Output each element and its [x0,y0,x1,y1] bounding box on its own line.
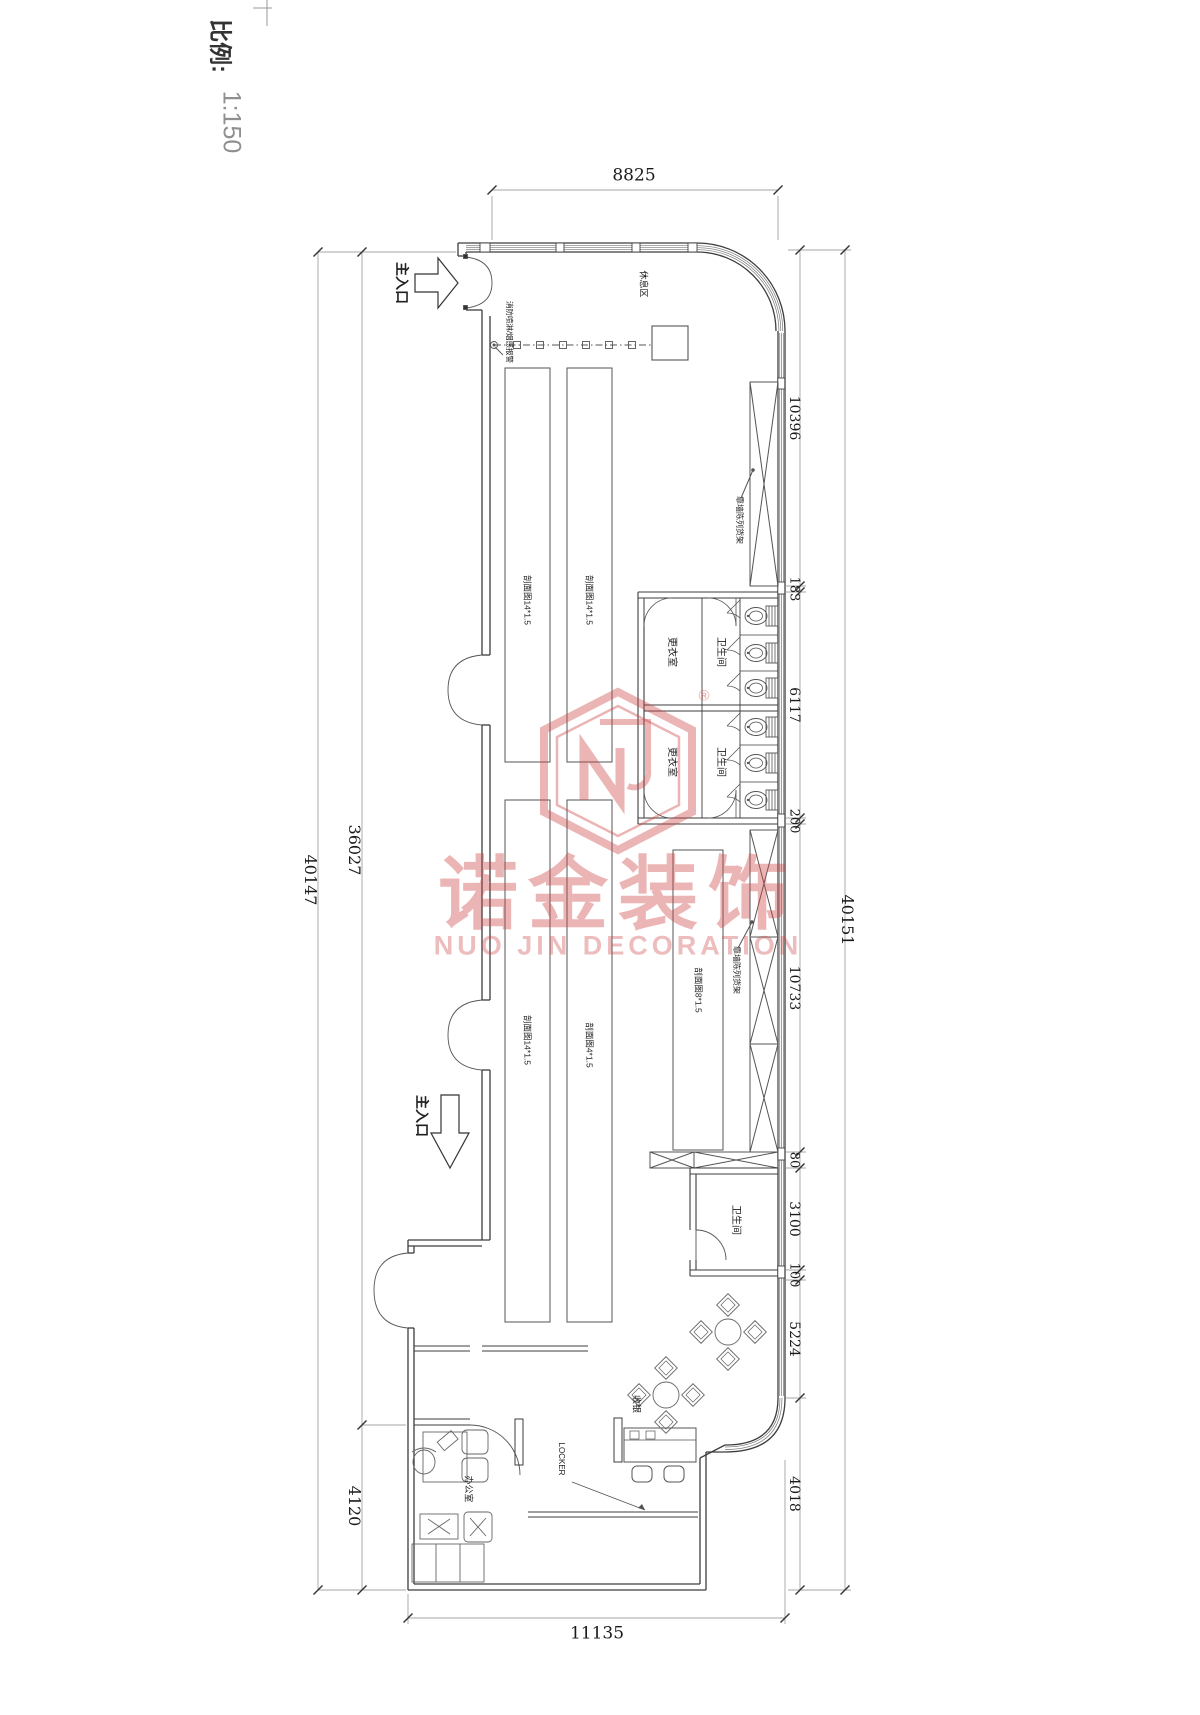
label-gondola-4: 剖面图4*1.5 [585,1022,594,1067]
dim-chain-6117: 6117 [787,687,801,723]
label-rest-area: 休息区 [639,270,648,297]
cafe-tables [628,1294,767,1434]
dim-chain-10396: 10396 [787,396,801,441]
dim-left-main: 36027 [346,825,362,876]
label-cashier: 收银 [632,1395,641,1413]
dim-chain-4018: 4018 [787,1476,801,1512]
toilet-block [638,592,778,824]
window-glazing [466,246,783,1450]
label-toilet-3: 卫生间 [730,1205,740,1235]
scale-prefix: 比例: [209,19,232,73]
exterior-walls [408,243,785,1590]
dim-left-total: 40147 [302,855,318,906]
dim-chain-200: 200 [788,809,801,834]
dim-top: 8825 [612,168,655,185]
window-mullions [480,243,785,1278]
dim-chain-10733: 10733 [787,966,801,1011]
label-gondola-14-b: 剖面图14*1.5 [585,575,594,625]
dim-chain-100: 100 [788,1263,801,1288]
dim-chain-5224: 5224 [787,1321,801,1357]
label-gondola-14-a: 剖面图14*1.5 [523,575,532,625]
dim-right-total: 40151 [839,895,855,946]
label-changing-room-1: 更衣室 [666,637,676,667]
label-toilet-1: 卫生间 [715,637,725,667]
label-office: 办公室 [464,1475,473,1502]
label-gondola-8: 剖面图8*1.5 [694,967,703,1012]
label-main-entrance-side: 主入口 [415,1095,429,1137]
label-gondola-14-c: 剖面图14*1.5 [523,1015,532,1065]
cashier-counter [572,1428,696,1510]
sprinkler-line [491,326,689,360]
toilet-block-doors [644,598,740,818]
dim-chain-80: 80 [788,1152,801,1169]
label-main-entrance-top: 主入口 [395,262,409,304]
dim-chain-183: 183 [788,577,801,602]
label-toilet-2: 卫生间 [715,747,725,777]
label-wall-display-1: 靠墙陈列货架 [735,496,743,544]
partitions [414,1346,698,1517]
dim-bottom: 11135 [570,1626,624,1643]
entrance-arrows [415,258,469,1168]
toilet-fixtures [745,606,778,810]
floorplan-sheet: 比例: 1:150 8825 11135 40147 36027 4120 40… [0,0,1200,1715]
dim-left-lower: 4120 [346,1486,362,1527]
label-wall-display-2: 靠墙陈列货架 [732,946,740,994]
floorplan-drawing [0,0,1200,1715]
label-sprinkler-note: 消防喷淋/烟感报警 [505,301,513,363]
office-furniture [412,1430,492,1582]
label-locker: LOCKER [557,1443,565,1476]
dimension-lines [318,190,851,1624]
scale-value: 1:150 [219,91,244,154]
label-changing-room-2: 更衣室 [666,747,676,777]
dim-chain-3100: 3100 [787,1201,801,1237]
titleblock-fragment [253,0,272,26]
